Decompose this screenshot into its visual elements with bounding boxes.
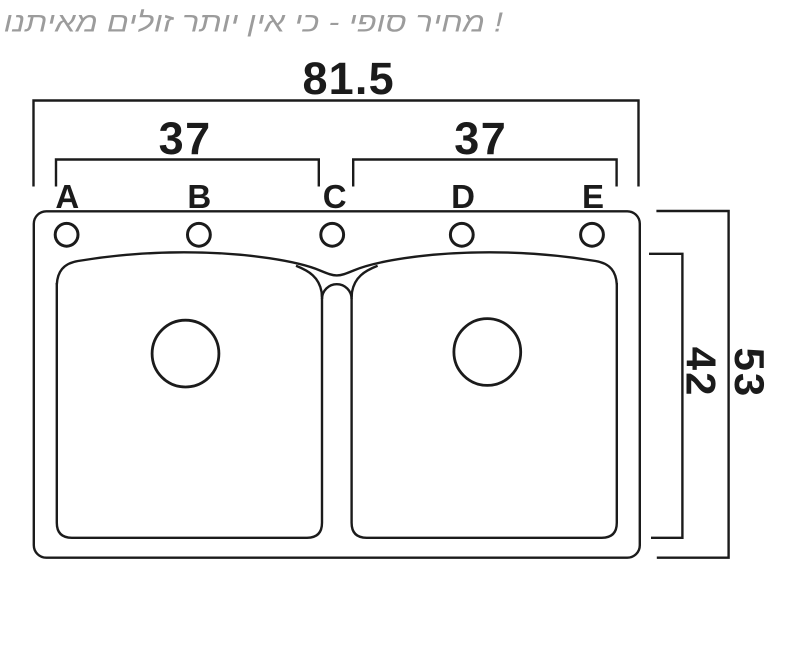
svg-text:42: 42 [678, 347, 725, 398]
svg-text:D: D [451, 178, 475, 215]
svg-text:B: B [187, 178, 211, 215]
svg-text:A: A [55, 178, 79, 215]
svg-text:E: E [582, 178, 604, 215]
svg-text:53: 53 [726, 348, 773, 399]
svg-text:81.5: 81.5 [302, 53, 394, 104]
svg-text:C: C [323, 178, 347, 215]
svg-text:37: 37 [454, 113, 507, 164]
svg-text:37: 37 [159, 113, 212, 164]
